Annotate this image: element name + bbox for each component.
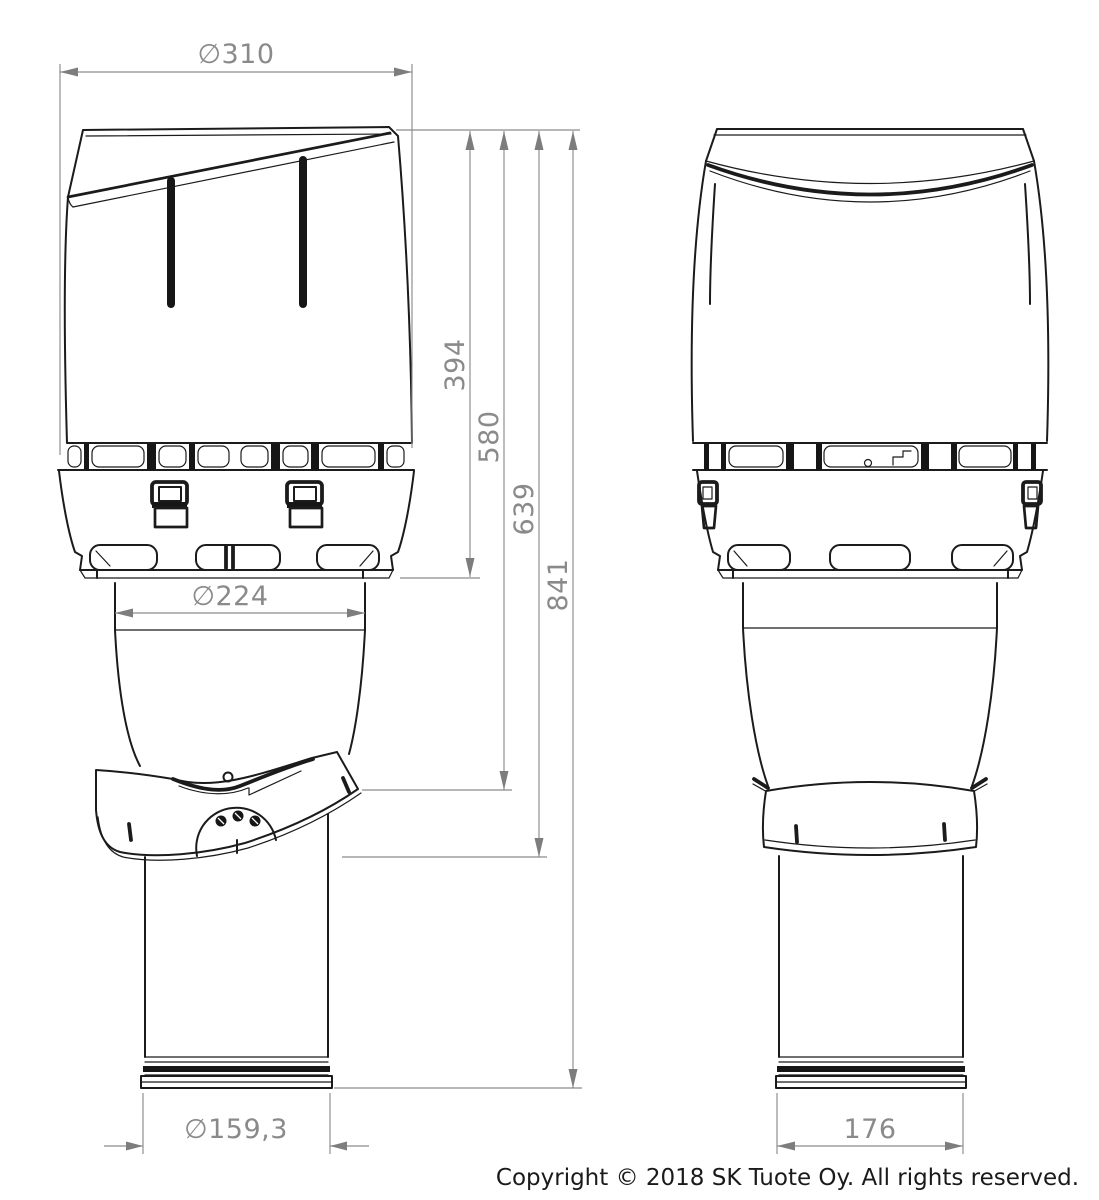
dim-label-height-to-seal-bottom: 639 (509, 482, 540, 535)
cap-seam-groove (167, 177, 175, 308)
dim-adapter-diameter: ∅224 (115, 581, 365, 618)
drain-slot (830, 545, 910, 570)
dim-pipe-diameter: ∅159,3 (104, 1093, 369, 1154)
skirt-side (697, 471, 1043, 578)
cap-rim (708, 165, 1032, 195)
dim-label-cap-height: 394 (440, 338, 471, 391)
dim-label-pipe-diameter: ∅159,3 (184, 1114, 288, 1145)
drain-slot (90, 545, 157, 570)
dim-label-side-pipe-width: 176 (843, 1114, 896, 1145)
dim-side-pipe-width: 176 (777, 1093, 963, 1154)
drain-slot (952, 545, 1013, 570)
band-detail-hole (865, 460, 872, 467)
side-view (692, 129, 1049, 1088)
vent-cap-side (692, 129, 1049, 443)
drain-slot (728, 545, 790, 570)
technical-drawing-sheet: ∅310 394 580 639 841 (0, 0, 1099, 1200)
cap-seam-groove (299, 156, 307, 308)
dim-label-adapter-diameter: ∅224 (191, 581, 268, 612)
flashing-collar-side (753, 779, 987, 855)
vent-band-front (58, 444, 414, 470)
drain-slot (196, 545, 280, 570)
adapter-side (743, 583, 997, 786)
band-detail-step (893, 451, 911, 465)
dim-label-cap-diameter: ∅310 (197, 39, 274, 70)
dim-label-height-to-seal-top: 580 (474, 410, 505, 463)
drain-slot (317, 545, 379, 570)
pipe-seal-ring (777, 1066, 965, 1072)
ventilation-pipe-drawing: ∅310 394 580 639 841 (0, 0, 1099, 1200)
lower-pipe-side (776, 856, 966, 1088)
vent-band-side (693, 444, 1047, 470)
dim-label-total-height: 841 (543, 558, 574, 611)
roof-flashing-front (96, 752, 361, 860)
copyright-notice: Copyright © 2018 SK Tuote Oy. All rights… (19, 1165, 1079, 1191)
vent-cap-front (65, 127, 412, 443)
skirt-front (59, 471, 414, 578)
pipe-seal-ring (143, 1066, 330, 1072)
